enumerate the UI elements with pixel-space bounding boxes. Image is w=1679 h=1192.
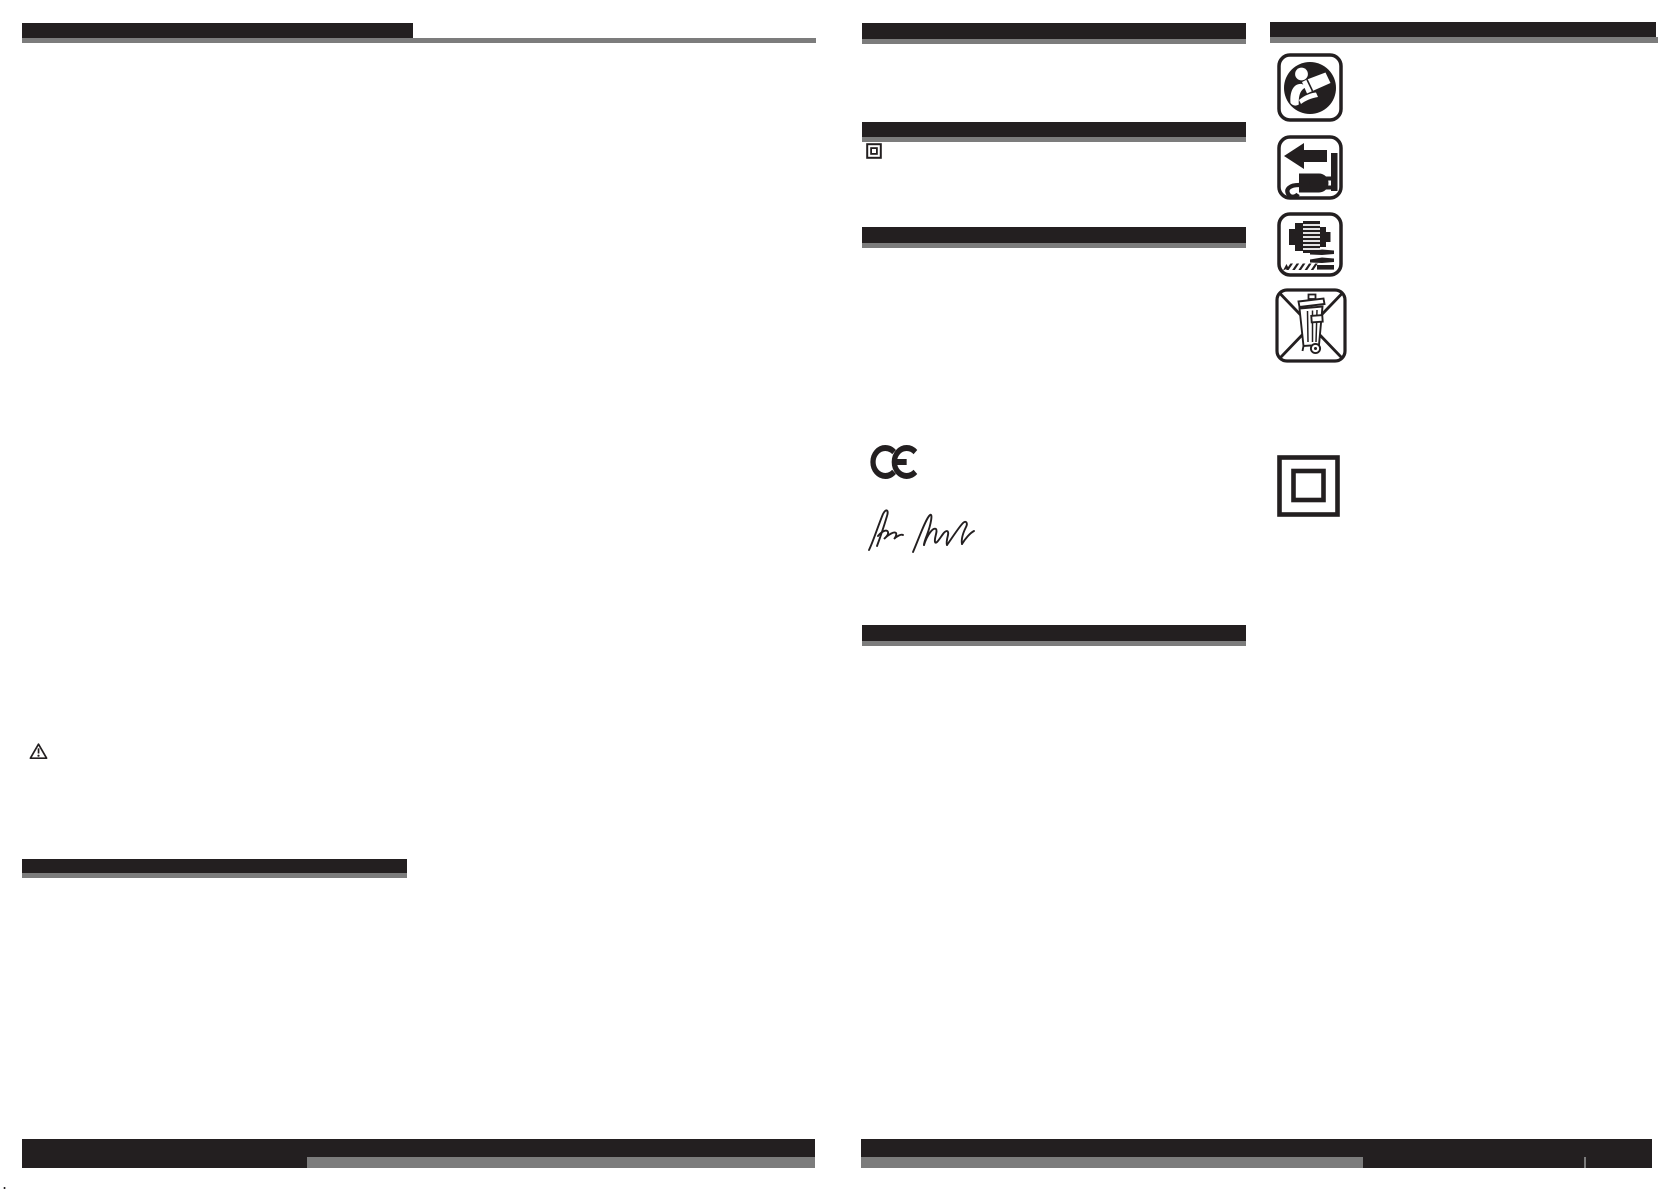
class2-insulation-icon-large [1277,455,1340,517]
left-footer-bar-stub [22,1157,307,1168]
weee-bin-icon [1275,288,1347,363]
warning-triangle-icon [29,742,48,760]
mid-section-rule-3 [862,243,1246,248]
mid-section-rule-1 [862,39,1246,44]
ce-mark [870,443,922,481]
left-header-rule [22,38,816,43]
left-footer-bar [22,1139,815,1157]
right-footer-tick [1584,1157,1586,1168]
signature [866,502,978,557]
read-manual-icon [1277,53,1343,122]
mid-section-bar-4 [862,625,1246,641]
left-section-rule [22,873,407,878]
drill-bits-icon [1277,212,1343,277]
right-footer-bar-stub [1363,1157,1652,1168]
mid-section-bar-3 [862,227,1246,243]
left-section-bar [22,859,407,873]
right-footer-rule [861,1157,1363,1168]
mid-section-bar-2 [862,122,1246,137]
right-header-rule [1270,37,1658,43]
left-header-bar [22,23,413,38]
right-header-bar [1270,22,1656,37]
footer-dot: . [2,1176,7,1192]
document-spread: . [0,0,1679,1192]
unplug-icon [1277,135,1343,200]
right-footer-bar [861,1139,1652,1157]
class2-insulation-icon-small [866,143,882,159]
mid-section-rule-4 [862,641,1246,646]
mid-section-bar-1 [862,23,1246,39]
mid-section-rule-2 [862,137,1246,142]
left-footer-rule [307,1157,815,1168]
